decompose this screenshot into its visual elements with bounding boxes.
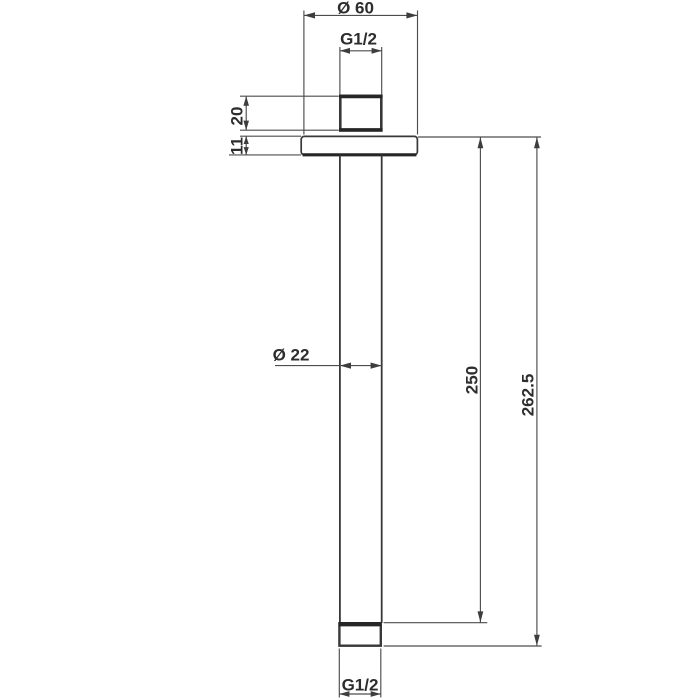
arrowhead-left <box>340 363 351 369</box>
arrowhead-right <box>371 363 382 369</box>
dim-label-bottom-thread: G1/2 <box>342 676 379 693</box>
arrowhead-right <box>372 48 382 54</box>
arrowhead-up <box>243 96 249 106</box>
dim-label-length-250: 250 <box>463 365 480 393</box>
arrowhead-left <box>340 48 350 54</box>
dim-label-top-thread: G1/2 <box>340 31 377 48</box>
part-square-connector <box>339 96 383 130</box>
arrowhead-right <box>406 12 417 18</box>
flange-body <box>301 136 417 154</box>
technical-drawing-canvas: Ø 60 G1/2 20 11 Ø 22 250 262.5 G1/2 <box>0 0 700 700</box>
dim-label-flange-thickness: 11 <box>229 137 246 155</box>
dim-label-flange-diameter: Ø 60 <box>337 0 374 16</box>
connector-body <box>340 96 381 130</box>
dim-top-thread <box>340 47 382 95</box>
part-pipe <box>340 155 382 623</box>
drawing-linework <box>0 0 700 700</box>
arrowhead-down <box>478 611 484 622</box>
dim-label-connector-height: 20 <box>229 107 246 126</box>
dim-connector-height <box>240 96 339 130</box>
dim-label-overall-length: 262.5 <box>519 374 536 417</box>
dim-label-pipe-diameter: Ø 22 <box>273 347 310 364</box>
nut-body <box>339 623 380 645</box>
part-ceiling-flange <box>301 136 417 154</box>
arrowhead-down <box>534 635 540 646</box>
part-end-nut <box>339 623 381 645</box>
arrowhead-left <box>304 12 315 18</box>
arrowhead-up <box>534 137 540 148</box>
arrowhead-up <box>478 137 484 148</box>
